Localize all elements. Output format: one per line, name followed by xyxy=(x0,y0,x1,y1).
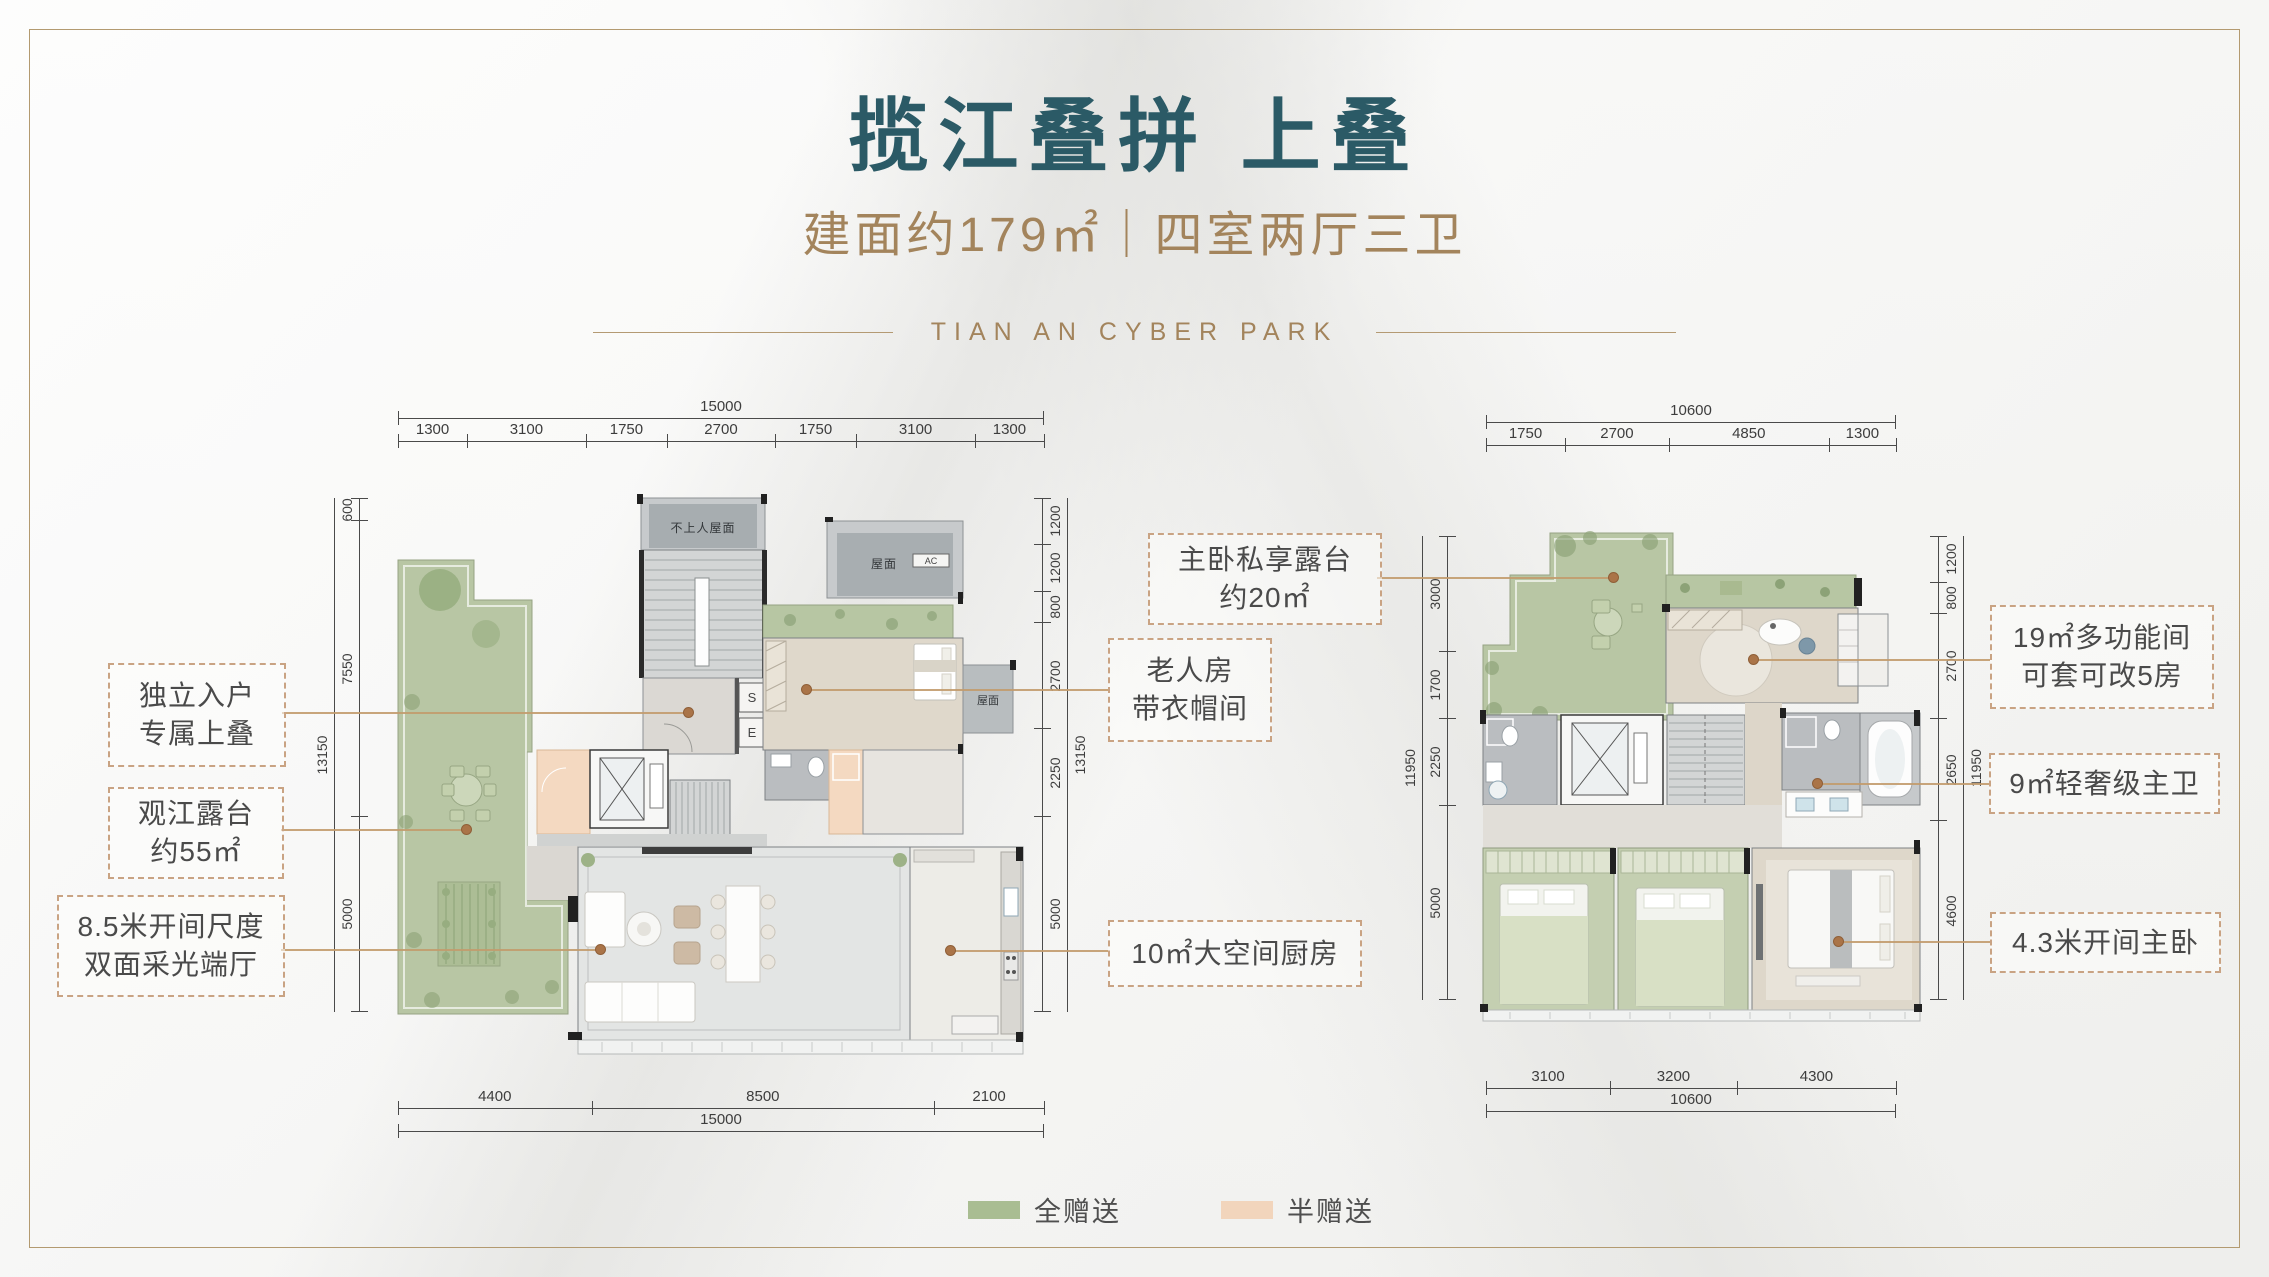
master-bedroom xyxy=(1752,848,1920,1010)
dim-segment: 3100 xyxy=(856,419,975,441)
dim-ruler-right-plan-bottom: 3100 3200 4300 10600 xyxy=(1486,1066,1896,1112)
elder-bed xyxy=(914,644,956,700)
dim-ruler-right-plan-right: 1200 800 2700 2650 4600 11950 xyxy=(1938,536,1988,1000)
page-subtitle: 建面约179㎡｜四室两厅三卫 xyxy=(0,195,2269,265)
armchair xyxy=(674,942,700,964)
cabinet-s-label: S xyxy=(748,690,757,705)
corridor-floor xyxy=(1483,805,1782,848)
dim-total: 11950 xyxy=(1963,536,1988,1000)
dim-segment: 2650 xyxy=(1939,719,1963,822)
elder-room-block: 屋面 AC 屋面 xyxy=(763,521,1013,834)
half-gift-zone-2 xyxy=(829,750,863,834)
roof-label-small: 屋面 xyxy=(977,694,999,707)
dim-segment: 3200 xyxy=(1610,1066,1737,1088)
dim-total: 10600 xyxy=(1486,400,1896,423)
dim-total: 11950 xyxy=(1398,536,1423,1000)
stair-core: 不上人屋面 S E xyxy=(527,498,767,900)
right-floor-plan xyxy=(1480,518,1925,1023)
leader-dot xyxy=(683,707,694,718)
legend-item-full-gift: 全赠送 xyxy=(968,1190,1121,1229)
dim-ruler-right-plan-top: 10600 1750 2700 4850 1300 xyxy=(1486,400,1896,446)
leader-line-elder-room xyxy=(806,689,1108,691)
brand-row: TIAN AN CYBER PARK xyxy=(0,318,2269,347)
leader-line-river-terrace xyxy=(281,829,466,831)
fridge xyxy=(952,1016,998,1034)
balcony-edge xyxy=(578,1040,1023,1054)
brand-divider-right xyxy=(1376,332,1676,333)
dim-segment: 1200 xyxy=(1043,498,1067,545)
leader-dot xyxy=(1748,654,1759,665)
roof-right-small: 屋面 xyxy=(963,665,1013,733)
dim-segment: 1700 xyxy=(1423,652,1447,718)
callout-multi-room: 19㎡多功能间可套可改5房 xyxy=(1990,605,2214,709)
leader-dot xyxy=(461,824,472,835)
dim-segment: 7550 xyxy=(335,521,359,816)
left-floor-plan: 不上人屋面 S E xyxy=(392,492,1052,1064)
dim-segment: 1750 xyxy=(586,419,667,441)
dim-segment: 1300 xyxy=(1829,423,1896,445)
dim-segment: 2700 xyxy=(1043,623,1067,729)
leader-line-kitchen xyxy=(950,950,1108,952)
roof-upper-right: 屋面 AC xyxy=(827,521,963,598)
upper-bathroom xyxy=(1483,715,1557,805)
dim-segment: 5000 xyxy=(1423,806,1447,1000)
dim-segments: 3000 1700 2250 5000 xyxy=(1423,536,1448,1000)
kitchen-sink xyxy=(1004,888,1018,916)
dim-total: 15000 xyxy=(398,1109,1044,1132)
dim-segment: 1200 xyxy=(1043,545,1067,592)
dim-segment: 2100 xyxy=(934,1086,1044,1108)
dim-segment: 8500 xyxy=(592,1086,935,1108)
stove xyxy=(1004,952,1018,980)
bench xyxy=(1796,976,1860,986)
brand-divider-left xyxy=(593,332,893,333)
dim-segments: 4400 8500 2100 xyxy=(398,1086,1044,1109)
callout-elder-room: 老人房带衣帽间 xyxy=(1108,638,1272,742)
legend-item-half-gift: 半赠送 xyxy=(1221,1190,1374,1229)
dim-ruler-right-plan-left: 11950 3000 1700 2250 5000 xyxy=(1398,536,1448,1000)
bedroom-1 xyxy=(1483,848,1614,1010)
dressing-area xyxy=(863,750,963,834)
stairs xyxy=(1667,715,1745,805)
dim-total: 13150 xyxy=(1067,498,1092,1012)
leader-line-master-bed xyxy=(1838,941,1990,943)
floorplan-poster: 揽江叠拼 上叠 建面约179㎡｜四室两厅三卫 TIAN AN CYBER PAR… xyxy=(0,0,2269,1277)
dim-segment: 1750 xyxy=(775,419,856,441)
lower-stairs xyxy=(670,780,730,840)
chaise xyxy=(585,892,625,947)
cabinet-e-label: E xyxy=(748,725,757,740)
dim-segment: 4400 xyxy=(398,1086,592,1108)
dim-segment: 600 xyxy=(335,498,359,521)
sofa xyxy=(585,982,695,1022)
dim-segments: 1750 2700 4850 1300 xyxy=(1486,423,1896,446)
leader-line-multi-room xyxy=(1753,659,1990,661)
leader-dot xyxy=(1833,936,1844,947)
dim-segment: 4300 xyxy=(1737,1066,1896,1088)
dim-segment: 3000 xyxy=(1423,536,1447,652)
dim-segments: 1200 1200 800 2700 2250 5000 xyxy=(1042,498,1067,1012)
dim-total: 15000 xyxy=(398,396,1044,419)
elder-bathroom xyxy=(765,750,829,800)
multi-room-terrace-strip xyxy=(1666,575,1856,608)
dim-segment: 5000 xyxy=(1043,817,1067,1012)
leader-dot xyxy=(945,945,956,956)
multi-function-room xyxy=(1666,608,1888,703)
planter-bed xyxy=(438,882,500,966)
leader-dot xyxy=(1608,572,1619,583)
dim-ruler-left-plan-left: 13150 600 7550 5000 xyxy=(310,498,360,1012)
bedroom-2 xyxy=(1618,848,1748,1010)
callout-hall: 8.5米开间尺度双面采光端厅 xyxy=(57,895,285,997)
leader-line-master-bath xyxy=(1817,783,1989,785)
leader-line-entry xyxy=(282,712,688,714)
callout-entry: 独立入户专属上叠 xyxy=(108,663,286,767)
dim-ruler-left-plan-right: 1200 1200 800 2700 2250 5000 13150 xyxy=(1042,498,1092,1012)
tv-console xyxy=(1756,884,1763,960)
leader-line-hall xyxy=(281,949,600,951)
dim-segment: 2700 xyxy=(667,419,775,441)
dim-ruler-left-plan-bottom: 4400 8500 2100 15000 xyxy=(398,1086,1044,1132)
dim-segment: 2700 xyxy=(1565,423,1669,445)
dim-total: 10600 xyxy=(1486,1089,1896,1112)
dim-segment: 4850 xyxy=(1669,423,1829,445)
dim-segment: 2700 xyxy=(1939,614,1963,719)
callout-river-terrace: 观江露台约55㎡ xyxy=(108,787,284,879)
callout-master-bath: 9㎡轻奢级主卫 xyxy=(1989,753,2220,814)
dim-segments: 3100 3200 4300 xyxy=(1486,1066,1896,1089)
master-bathroom xyxy=(1782,713,1920,817)
dim-segments: 1300 3100 1750 2700 1750 3100 1300 xyxy=(398,419,1044,442)
storage-cabinet: E xyxy=(739,718,765,747)
dim-segment: 5000 xyxy=(335,817,359,1012)
dim-segment: 1300 xyxy=(398,419,467,441)
full-gift-label: 全赠送 xyxy=(1034,1190,1121,1229)
dim-segment: 2250 xyxy=(1043,729,1067,817)
brand-name: TIAN AN CYBER PARK xyxy=(931,318,1339,347)
kitchen xyxy=(910,847,1023,1040)
leader-dot xyxy=(801,684,812,695)
dim-segment: 3100 xyxy=(1486,1066,1610,1088)
legend: 全赠送 半赠送 xyxy=(968,1190,1374,1229)
dim-segment: 1750 xyxy=(1486,423,1565,445)
dim-segments: 1200 800 2700 2650 4600 xyxy=(1938,536,1963,1000)
half-gift-swatch xyxy=(1221,1201,1273,1219)
dim-segment: 800 xyxy=(1043,592,1067,623)
balcony-edge xyxy=(1483,1010,1920,1021)
leader-dot xyxy=(595,944,606,955)
roof-no-access-label: 不上人屋面 xyxy=(670,521,735,535)
roof-label: 屋面 xyxy=(871,557,897,571)
leader-dot xyxy=(1812,778,1823,789)
dim-segment: 3100 xyxy=(467,419,586,441)
half-gift-entry-zone xyxy=(537,750,590,834)
elevator xyxy=(1561,715,1663,805)
dim-ruler-left-plan-top: 15000 1300 3100 1750 2700 1750 3100 1300 xyxy=(398,396,1044,442)
elevator xyxy=(590,750,668,828)
leader-line-master-terrace xyxy=(1377,577,1613,579)
dining-table xyxy=(726,886,760,982)
master-terrace-garden xyxy=(1483,531,1673,722)
dim-segment: 1300 xyxy=(975,419,1044,441)
dim-segments: 600 7550 5000 xyxy=(335,498,360,1012)
callout-master-terrace: 主卧私享露台约20㎡ xyxy=(1148,533,1382,625)
page-title: 揽江叠拼 上叠 xyxy=(0,72,2269,188)
desk-chair xyxy=(1799,638,1815,654)
dim-segment: 4600 xyxy=(1939,821,1963,1000)
shoe-cabinet: S xyxy=(739,683,765,712)
desk xyxy=(1759,619,1801,645)
callout-master-bed: 4.3米开间主卧 xyxy=(1990,912,2221,973)
armchair xyxy=(674,906,700,928)
living-dining-room xyxy=(578,847,910,1040)
dim-segment: 1200 xyxy=(1939,536,1963,583)
callout-kitchen: 10㎡大空间厨房 xyxy=(1108,920,1362,987)
dim-segment: 800 xyxy=(1939,583,1963,614)
half-gift-label: 半赠送 xyxy=(1287,1190,1374,1229)
ac-label: AC xyxy=(925,556,938,566)
full-gift-swatch xyxy=(968,1201,1020,1219)
dim-total: 13150 xyxy=(310,498,335,1012)
dim-segment: 2250 xyxy=(1423,719,1447,806)
dim-label: 15000 xyxy=(700,398,742,415)
